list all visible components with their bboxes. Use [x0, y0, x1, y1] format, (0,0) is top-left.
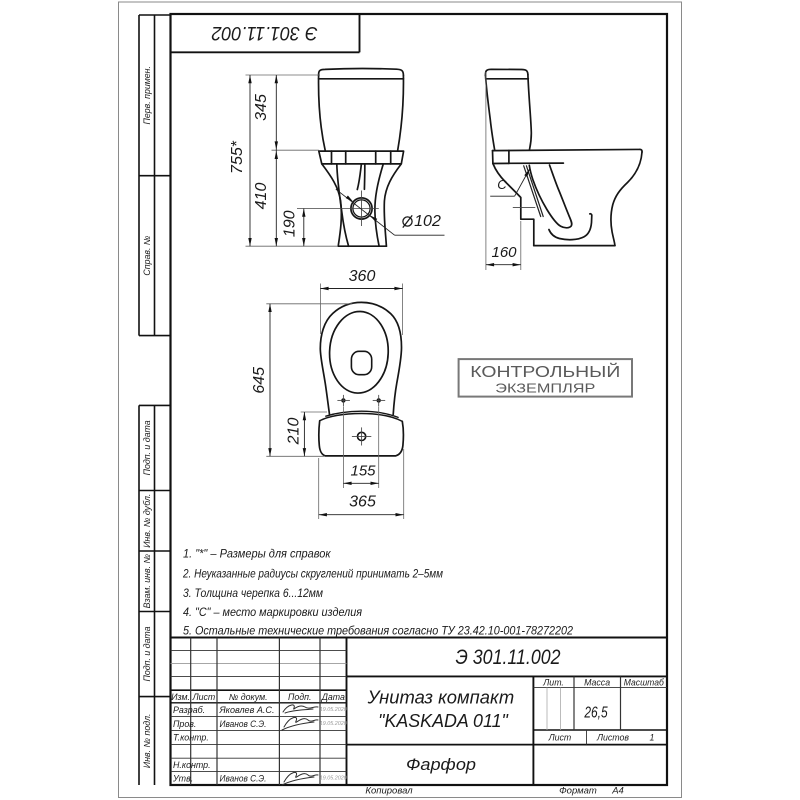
svg-text:Яковлев А.С.: Яковлев А.С. [218, 705, 274, 715]
svg-text:Фарфор: Фарфор [406, 756, 476, 774]
svg-text:Разраб.: Разраб. [173, 705, 205, 715]
svg-text:Взам. инв. №: Взам. инв. № [142, 554, 152, 608]
svg-text:Копировал: Копировал [365, 786, 413, 797]
svg-text:Масштаб: Масштаб [624, 677, 665, 687]
svg-text:160: 160 [491, 244, 517, 261]
svg-text:Т.контр.: Т.контр. [173, 733, 209, 743]
svg-text:Н.контр.: Н.контр. [173, 760, 211, 770]
svg-text:19.05.2020: 19.05.2020 [320, 721, 347, 727]
svg-text:Перв. примен.: Перв. примен. [142, 66, 152, 124]
svg-text:Дата: Дата [321, 692, 345, 702]
svg-text:Пров.: Пров. [173, 719, 196, 729]
svg-text:360: 360 [349, 268, 376, 285]
svg-text:Инв. № дубл.: Инв. № дубл. [142, 494, 152, 548]
svg-text:365: 365 [349, 493, 376, 510]
svg-text:5. Остальные технические требо: 5. Остальные технические требования согл… [183, 623, 573, 637]
svg-text:190: 190 [282, 210, 299, 237]
svg-text:Э 301.11.002: Э 301.11.002 [211, 22, 317, 44]
svg-text:Подп. и дата: Подп. и дата [142, 420, 152, 475]
svg-text:"KASKADA 011": "KASKADA 011" [378, 710, 509, 731]
svg-text:102: 102 [414, 213, 441, 230]
svg-text:26,5: 26,5 [584, 704, 608, 721]
svg-text:А4: А4 [611, 786, 624, 797]
svg-text:755*: 755* [229, 140, 246, 174]
svg-text:Изм.: Изм. [171, 692, 190, 702]
svg-text:345: 345 [253, 94, 270, 121]
svg-text:Инв. № подл.: Инв. № подл. [142, 714, 152, 769]
svg-text:КОНТРОЛЬНЫЙ: КОНТРОЛЬНЫЙ [470, 362, 620, 381]
svg-text:С: С [497, 177, 507, 192]
svg-text:ЭКЗЕМПЛЯР: ЭКЗЕМПЛЯР [495, 380, 595, 395]
svg-text:19.05.2020: 19.05.2020 [320, 707, 347, 713]
svg-text:Иванов С.Э.: Иванов С.Э. [220, 719, 267, 729]
svg-text:Подп. и дата: Подп. и дата [142, 626, 152, 681]
svg-text:2. Неуказанные радиусы скругле: 2. Неуказанные радиусы скруглений приним… [182, 566, 443, 580]
svg-text:Иванов С.Э.: Иванов С.Э. [220, 774, 267, 784]
svg-text:4. "С" – место маркировки изде: 4. "С" – место маркировки изделия [183, 605, 362, 619]
svg-text:210: 210 [286, 418, 303, 446]
svg-text:Формат: Формат [559, 786, 597, 797]
svg-text:3. Толщина черепка 6...12мм: 3. Толщина черепка 6...12мм [183, 586, 324, 600]
svg-text:1: 1 [650, 733, 655, 743]
svg-text:155: 155 [350, 463, 376, 480]
svg-text:19.05.2020: 19.05.2020 [320, 776, 347, 782]
svg-text:410: 410 [253, 183, 270, 210]
svg-text:Масса: Масса [584, 677, 610, 687]
svg-text:Листов: Листов [596, 733, 629, 743]
svg-text:№ докум.: № докум. [229, 692, 268, 702]
svg-text:Лист: Лист [548, 733, 572, 743]
svg-text:Унитаз компакт: Унитаз компакт [367, 687, 515, 708]
svg-text:Подп.: Подп. [288, 692, 311, 702]
svg-text:Лист: Лист [192, 692, 216, 702]
svg-text:Справ. №: Справ. № [142, 236, 152, 276]
svg-text:Э 301.11.002: Э 301.11.002 [456, 646, 561, 669]
svg-text:1. "*" – Размеры для справок: 1. "*" – Размеры для справок [183, 547, 332, 561]
svg-text:645: 645 [251, 367, 268, 394]
svg-text:Лит.: Лит. [542, 677, 564, 687]
svg-text:Утв.: Утв. [172, 774, 193, 784]
